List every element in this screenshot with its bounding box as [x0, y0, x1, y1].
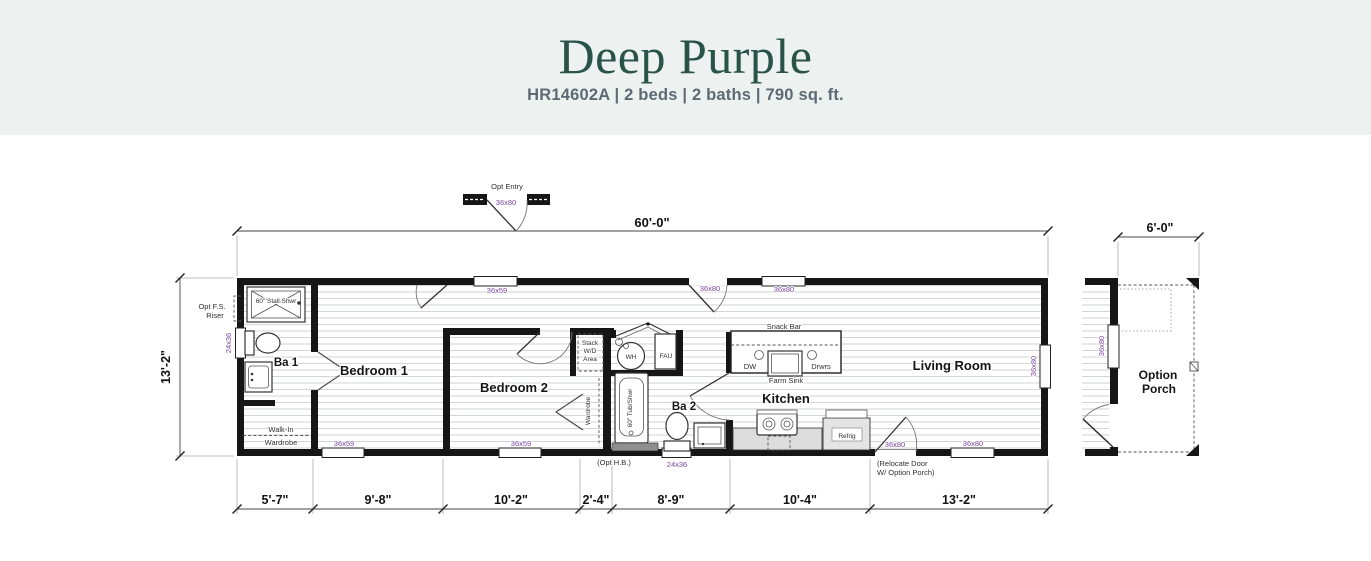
fau-label: FAU [660, 353, 673, 360]
window-living-right-36x80 [1040, 345, 1051, 388]
opt-hb-label: (Opt H.B.) [597, 458, 631, 467]
opt-entry-label: Opt Entry [491, 182, 523, 191]
room-ba1-label: Ba 1 [274, 357, 299, 369]
room-porch-label-1: Option [1139, 368, 1178, 382]
opt-fs-riser-label-1: Opt F.S. [198, 302, 225, 311]
bedroom1-window-label: 36x59 [334, 439, 354, 448]
relocate-note-1: (Relocate Door [877, 459, 928, 468]
stack-wd-label-1: Stack [582, 340, 599, 347]
room-ba2-label: Ba 2 [672, 401, 696, 413]
dim-bottom-1: 5'-7" [262, 493, 289, 507]
window-bedroom1-36x59 [322, 448, 364, 458]
window-bath1-24x36 [236, 328, 246, 358]
window-bedroom2-36x59 [499, 448, 541, 458]
vanity-ba1 [245, 362, 272, 392]
rear-door-label: 36x80 [700, 284, 720, 293]
porch-window-label: 36x80 [1097, 336, 1106, 356]
dim-bottom-6: 10'-4" [783, 493, 817, 507]
walkin-label-1: Walk-In [268, 425, 293, 434]
room-living-label: Living Room [913, 358, 992, 373]
living-window-right-label: 36x80 [1029, 356, 1038, 376]
dim-bottom-7: 13'-2" [942, 493, 976, 507]
refrigerator-label: Refrig [838, 433, 856, 440]
toilet-ba1 [245, 331, 280, 355]
kitchen-window-label: 36x80 [774, 285, 794, 294]
dim-porch-label: 6'-0" [1147, 221, 1174, 235]
room-kitchen-label: Kitchen [762, 391, 810, 406]
water-heater-label: WH [626, 354, 637, 361]
dim-bottom-5: 8'-9" [658, 493, 685, 507]
tub-shower-label: 60" Tub/Shwr [627, 388, 634, 428]
dim-left-label: 13'-2" [159, 350, 173, 384]
window-entry-36x59 [474, 277, 517, 287]
bedroom2-window-label: 36x59 [511, 439, 531, 448]
entry-window-label: 36x59 [487, 286, 507, 295]
stall-shower-label: 60" Stall Shwr [256, 298, 297, 305]
dim-top-label: 60'-0" [634, 215, 669, 230]
room-bedroom1-label: Bedroom 1 [340, 363, 408, 378]
drawers-label: Drwrs [811, 362, 831, 371]
farm-sink [768, 351, 802, 376]
fau-unit [655, 334, 676, 369]
wardrobe-label: Wardrobe [585, 396, 592, 425]
page-title: Deep Purple [558, 30, 812, 83]
dim-bottom-2: 9'-8" [365, 493, 392, 507]
stack-wd-label-2: W/D [584, 348, 597, 355]
bath1-window-label: 24x36 [224, 333, 233, 353]
front-door-label: 36x80 [885, 440, 905, 449]
toilet-ba2 [664, 413, 690, 452]
dishwasher-label: DW [744, 362, 757, 371]
opt-entry-size-label: 36x80 [496, 198, 516, 207]
dim-bottom-4: 2'-4" [583, 493, 610, 507]
plan-header: Deep Purple HR14602A | 2 beds | 2 baths … [0, 0, 1371, 135]
farm-sink-label: Farm Sink [769, 376, 803, 385]
tub-curb [612, 443, 658, 451]
refrigerator [823, 410, 870, 450]
snack-bar-label: Snack Bar [767, 322, 802, 331]
window-living-bottom-36x80 [951, 448, 994, 458]
vanity-ba2 [694, 423, 725, 448]
dim-bottom-3: 10'-2" [494, 493, 528, 507]
relocate-note-2: W/ Option Porch) [877, 468, 935, 477]
room-bedroom2-label: Bedroom 2 [480, 380, 548, 395]
floor-plan-drawing: Opt Entry 36x80 60'-0" 6'-0" 13'-2" 5'-7… [0, 135, 1371, 561]
page-subtitle: HR14602A | 2 beds | 2 baths | 790 sq. ft… [527, 86, 844, 105]
room-porch-label-2: Porch [1142, 382, 1176, 396]
stove [757, 410, 797, 435]
living-window-bottom-label: 36x80 [963, 439, 983, 448]
stack-wd-label-3: Area [583, 356, 597, 363]
bath2-window-label: 24x36 [667, 460, 687, 469]
opt-fs-riser-label-2: Riser [206, 311, 224, 320]
walkin-label-2: Wardrobe [265, 438, 298, 447]
